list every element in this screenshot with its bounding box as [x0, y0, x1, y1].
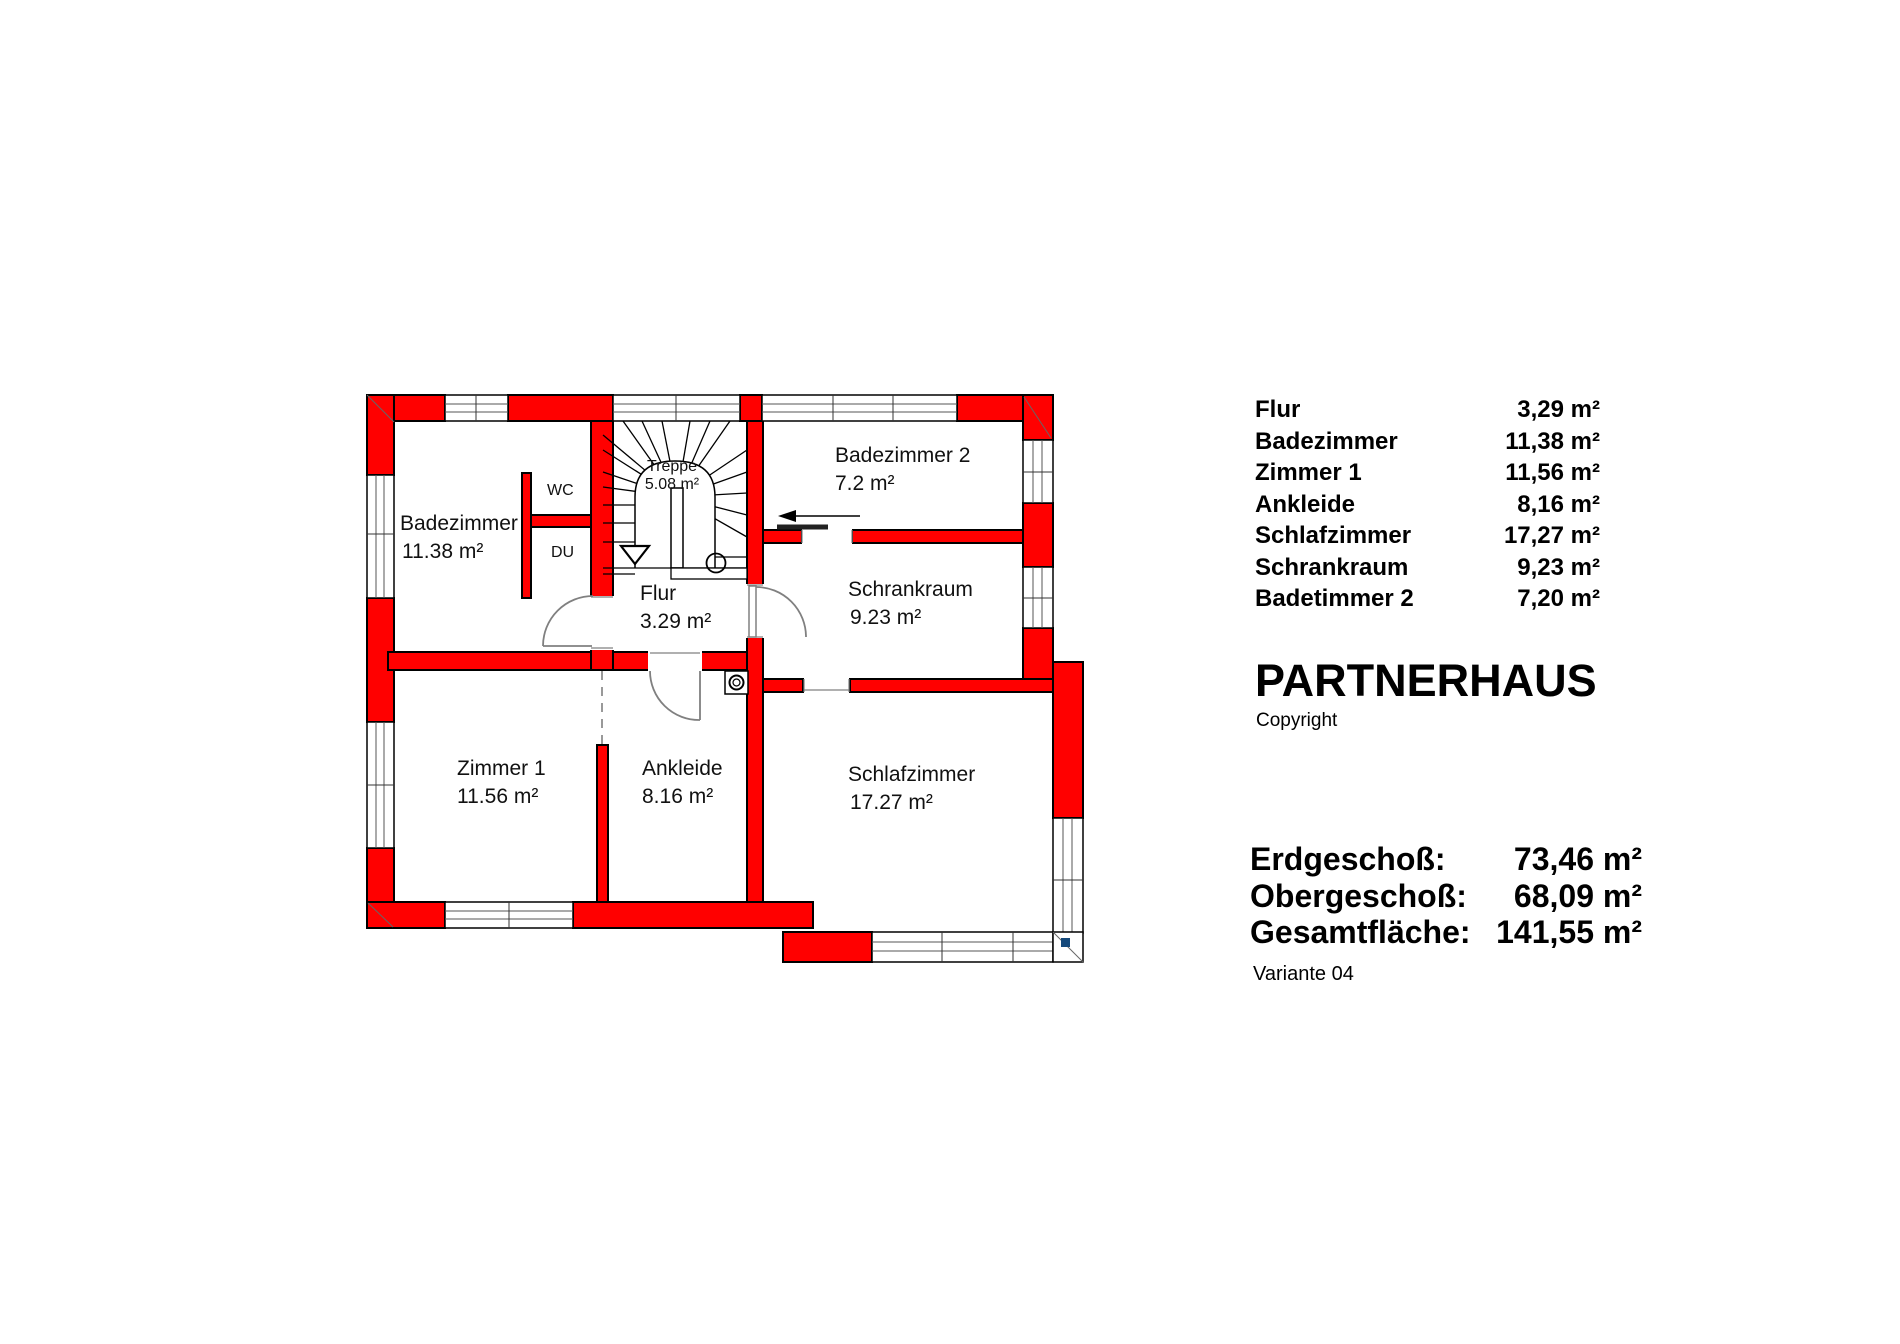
row-label: Ankleide — [1255, 489, 1355, 521]
room-area-table: Flur3,29 m² Badezimmer11,38 m² Zimmer 11… — [1255, 394, 1600, 615]
door-swing-arc — [650, 671, 700, 720]
window — [445, 395, 508, 421]
room-area-treppe: 5.08 m² — [645, 476, 700, 493]
window — [872, 932, 1053, 962]
summary-row: Obergeschoß:68,09 m² — [1250, 878, 1642, 915]
room-label-zimmer1: Zimmer 1 — [457, 757, 546, 780]
row-value: 7,20 m² — [1517, 583, 1600, 615]
summary-row: Gesamtfläche:141,55 m² — [1250, 914, 1642, 951]
summary-value: 73,46 m² — [1514, 841, 1642, 878]
room-area-schrankraum: 9.23 m² — [850, 606, 921, 629]
floor-plan: Badezimmer 11.38 m² WC DU Treppe 5.08 m²… — [0, 0, 1900, 1344]
summary-value: 68,09 m² — [1514, 878, 1642, 915]
row-label: Schrankraum — [1255, 552, 1408, 584]
window — [1023, 440, 1053, 503]
wall-segment — [522, 473, 531, 598]
row-label: Badezimmer — [1255, 426, 1398, 458]
row-value: 11,56 m² — [1505, 457, 1600, 489]
wall-segment — [508, 395, 613, 421]
row-value: 3,29 m² — [1517, 394, 1600, 426]
row-value: 11,38 m² — [1505, 426, 1600, 458]
stair-spine — [671, 488, 683, 568]
room-label-flur: Flur — [640, 582, 676, 605]
row-label: Zimmer 1 — [1255, 457, 1362, 489]
wall-segment — [1023, 503, 1053, 567]
wall-segment — [591, 421, 613, 598]
wall-segment — [531, 515, 591, 527]
room-area-flur: 3.29 m² — [640, 610, 711, 633]
wall-segment — [591, 648, 613, 670]
wall-segment — [763, 679, 803, 692]
summary-label: Gesamtfläche: — [1250, 914, 1471, 951]
window — [613, 395, 740, 421]
wall-segment — [740, 395, 762, 421]
area-summary: Erdgeschoß:73,46 m² Obergeschoß:68,09 m²… — [1250, 841, 1642, 951]
room-area-badezimmer: 11.38 m² — [402, 540, 483, 563]
table-row: Schlafzimmer17,27 m² — [1255, 520, 1600, 552]
staircase — [603, 421, 747, 579]
chimney-icon — [725, 671, 748, 694]
variant-label: Variante 04 — [1253, 962, 1354, 986]
wall-segment — [573, 902, 813, 928]
table-row: Flur3,29 m² — [1255, 394, 1600, 426]
row-value: 8,16 m² — [1517, 489, 1600, 521]
window — [1053, 818, 1083, 933]
window — [762, 395, 957, 421]
room-label-badezimmer: Badezimmer — [400, 512, 518, 535]
room-area-badezimmer2: 7.2 m² — [835, 472, 895, 495]
room-label-badezimmer2: Badezimmer 2 — [835, 444, 970, 467]
row-label: Flur — [1255, 394, 1300, 426]
door-swing-arc — [543, 596, 593, 646]
room-area-zimmer1: 11.56 m² — [457, 785, 538, 808]
row-value: 9,23 m² — [1517, 552, 1600, 584]
room-label-ankleide: Ankleide — [642, 757, 723, 780]
wall-segment — [367, 902, 445, 928]
entry-arrow-icon — [778, 510, 860, 522]
row-value: 17,27 m² — [1504, 520, 1600, 552]
summary-label: Erdgeschoß: — [1250, 841, 1446, 878]
room-label-treppe: Treppe — [647, 458, 697, 475]
row-label: Schlafzimmer — [1255, 520, 1411, 552]
fixture-label-du: DU — [551, 544, 574, 561]
copyright-label: Copyright — [1256, 710, 1337, 732]
window — [445, 902, 573, 928]
door-leaf — [749, 586, 756, 637]
corner-marker — [1061, 938, 1070, 947]
wall-segment — [747, 637, 763, 902]
room-area-ankleide: 8.16 m² — [642, 785, 713, 808]
wall-segment — [852, 530, 1023, 543]
brand-title: PARTNERHAUS — [1255, 656, 1597, 706]
bay-corner — [1053, 932, 1083, 962]
row-label: Badetimmer 2 — [1255, 583, 1414, 615]
summary-label: Obergeschoß: — [1250, 878, 1467, 915]
table-row: Badezimmer11,38 m² — [1255, 426, 1600, 458]
table-row: Zimmer 111,56 m² — [1255, 457, 1600, 489]
interior-walls — [388, 421, 1053, 902]
summary-value: 141,55 m² — [1496, 914, 1642, 951]
wall-segment — [850, 679, 1053, 692]
wall-segment — [763, 530, 802, 543]
wall-segment — [1053, 662, 1083, 818]
wall-segment — [597, 745, 608, 902]
table-row: Schrankraum9,23 m² — [1255, 552, 1600, 584]
summary-row: Erdgeschoß:73,46 m² — [1250, 841, 1642, 878]
window — [367, 475, 394, 598]
room-area-schlafzimmer: 17.27 m² — [850, 791, 933, 814]
table-row: Ankleide8,16 m² — [1255, 489, 1600, 521]
room-label-schrankraum: Schrankraum — [848, 578, 973, 601]
fixture-label-wc: WC — [547, 482, 574, 499]
table-row: Badetimmer 27,20 m² — [1255, 583, 1600, 615]
wall-segment — [783, 932, 872, 962]
window — [367, 722, 394, 848]
wall-segment — [367, 395, 394, 475]
room-label-schlafzimmer: Schlafzimmer — [848, 763, 975, 786]
wall-segment — [747, 421, 763, 585]
window — [1023, 567, 1053, 628]
